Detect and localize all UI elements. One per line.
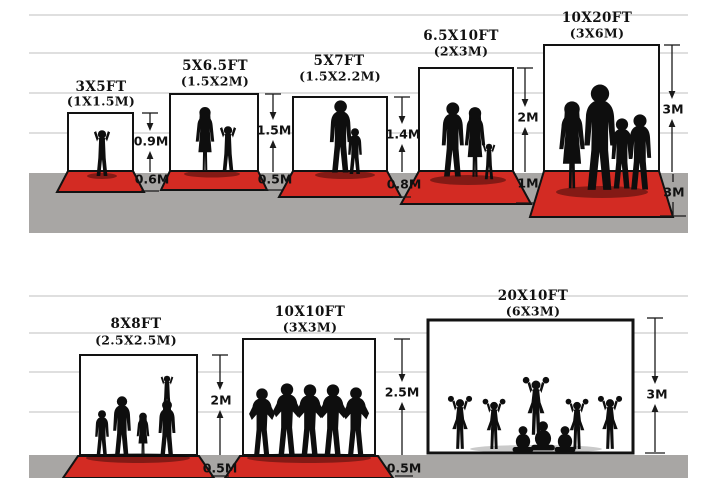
title-20x10ft: 20X10FT <box>498 288 568 304</box>
floor-label-3x5ft: 0.6M <box>135 172 170 187</box>
title-8x8ft: 8X8FT <box>111 316 162 332</box>
subtitle-10x10ft: (3X3M) <box>283 320 338 335</box>
height-label-3x5ft: 0.9M <box>134 134 169 149</box>
height-label-6.5x10ft: 2M <box>517 110 538 125</box>
dim-20x10ft <box>645 318 665 453</box>
floor-label-5x6.5ft: 0.5M <box>258 172 293 187</box>
title-10x20ft: 10X20FT <box>562 10 632 26</box>
height-label-10x10ft: 2.5M <box>385 385 420 400</box>
height-label-5x7ft: 1.4M <box>386 127 421 142</box>
frame-6.5x10ft <box>419 68 513 172</box>
title-10x10ft: 10X10FT <box>275 304 345 320</box>
subtitle-20x10ft: (6X3M) <box>506 304 561 319</box>
height-label-8x8ft: 2M <box>210 393 231 408</box>
floor-label-8x8ft: 0.5M <box>203 461 238 476</box>
subtitle-6.5x10ft: (2X3M) <box>434 44 489 59</box>
frame-5x6.5ft <box>170 94 258 172</box>
frame-8x8ft <box>80 355 197 455</box>
subtitle-10x20ft: (3X6M) <box>570 26 625 41</box>
subtitle-5x6.5ft: (1.5X2M) <box>181 74 249 89</box>
floor-label-6.5x10ft: 1M <box>517 176 538 191</box>
height-label-5x6.5ft: 1.5M <box>257 123 292 138</box>
title-5x7ft: 5X7FT <box>314 53 365 69</box>
subtitle-3x5ft: (1X1.5M) <box>67 94 135 109</box>
height-label-20x10ft: 3M <box>646 387 667 402</box>
subtitle-5x7ft: (1.5X2.2M) <box>299 69 381 84</box>
floor-label-5x7ft: 0.8M <box>387 177 422 192</box>
floor-label-10x10ft: 0.5M <box>387 461 422 476</box>
subtitle-8x8ft: (2.5X2.5M) <box>95 333 177 348</box>
title-6.5x10ft: 6.5X10FT <box>423 28 499 44</box>
size-comparison-diagram: 3X5FT (1X1.5M) 5X6.5FT (1.5X2M) 5X7FT (1… <box>0 0 720 478</box>
height-label-10x20ft: 3M <box>662 102 683 117</box>
title-5x6.5ft: 5X6.5FT <box>182 58 248 74</box>
floor-label-10x20ft: 3M <box>663 185 684 200</box>
